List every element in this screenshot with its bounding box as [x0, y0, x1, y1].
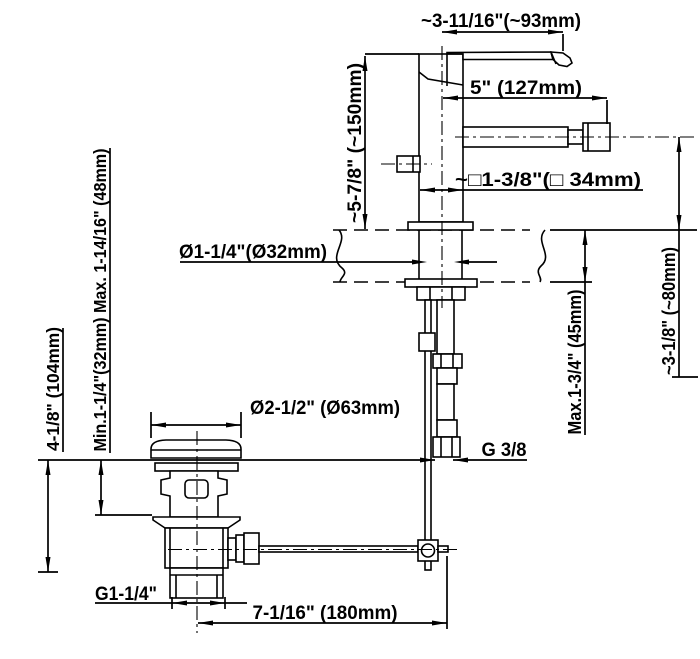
countertop-section — [333, 230, 697, 282]
pop-up-drain — [151, 440, 448, 598]
hose-ribbed-upper — [437, 368, 457, 384]
label-supply-thread: G 3/8 — [482, 440, 527, 461]
knurled-nut — [244, 533, 259, 564]
label-spray-length: 5" (127mm) — [470, 78, 582, 99]
hose-ribbed-lower — [437, 420, 457, 437]
label-body-height: ~5-7/8" (~150mm) — [345, 63, 366, 223]
rod-adjuster — [419, 333, 435, 351]
label-handle-reach: ~3-11/16"(~93mm) — [421, 11, 581, 32]
linkage-pivot — [422, 544, 435, 557]
label-cap-diameter: Ø2-1/2" (Ø63mm) — [250, 398, 400, 419]
mounting-shank — [419, 230, 462, 279]
hose-braid-lower — [437, 384, 454, 420]
drain-upper-body — [161, 471, 227, 517]
label-deck-hole: Ø1-1/4"(Ø32mm) — [179, 242, 327, 263]
washer — [405, 279, 477, 287]
dimension-labels: ~3-11/16"(~93mm) 5" (127mm) ~5-7/8" (~15… — [43, 11, 679, 624]
break-line-left — [337, 230, 345, 282]
drawing-canvas: ~3-11/16"(~93mm) 5" (127mm) ~5-7/8" (~15… — [0, 0, 700, 659]
label-drain-thread: G1-1/4" — [95, 584, 157, 605]
dimension-lines — [38, 30, 698, 630]
deck-flange — [408, 222, 473, 230]
hose-braid-upper — [437, 300, 454, 354]
label-body-square: ~□1-3/8"(□ 34mm) — [455, 170, 641, 191]
hose-hex-fitting — [433, 354, 462, 368]
supply-hose-and-rod — [419, 300, 462, 570]
locknut — [417, 287, 465, 300]
label-rod-offset: 7-1/16" (180mm) — [253, 603, 398, 624]
technical-drawing: ~3-11/16"(~93mm) 5" (127mm) ~5-7/8" (~15… — [0, 0, 700, 659]
label-clamp-range: Min.1-1/4"(32mm) Max. 1-14/16" (48mm) — [90, 149, 110, 452]
label-drain-depth: 4-1/8" (104mm) — [43, 327, 63, 451]
label-counter-thickness: Max.1-3/4" (45mm) — [565, 290, 585, 435]
break-line-right — [538, 230, 545, 282]
drain-cap — [151, 440, 241, 458]
faucet-body — [419, 54, 463, 222]
hose-end-nut — [433, 437, 460, 457]
label-spray-height: ~3-1/8" (~80mm) — [659, 247, 679, 375]
lever-handle — [447, 52, 553, 60]
